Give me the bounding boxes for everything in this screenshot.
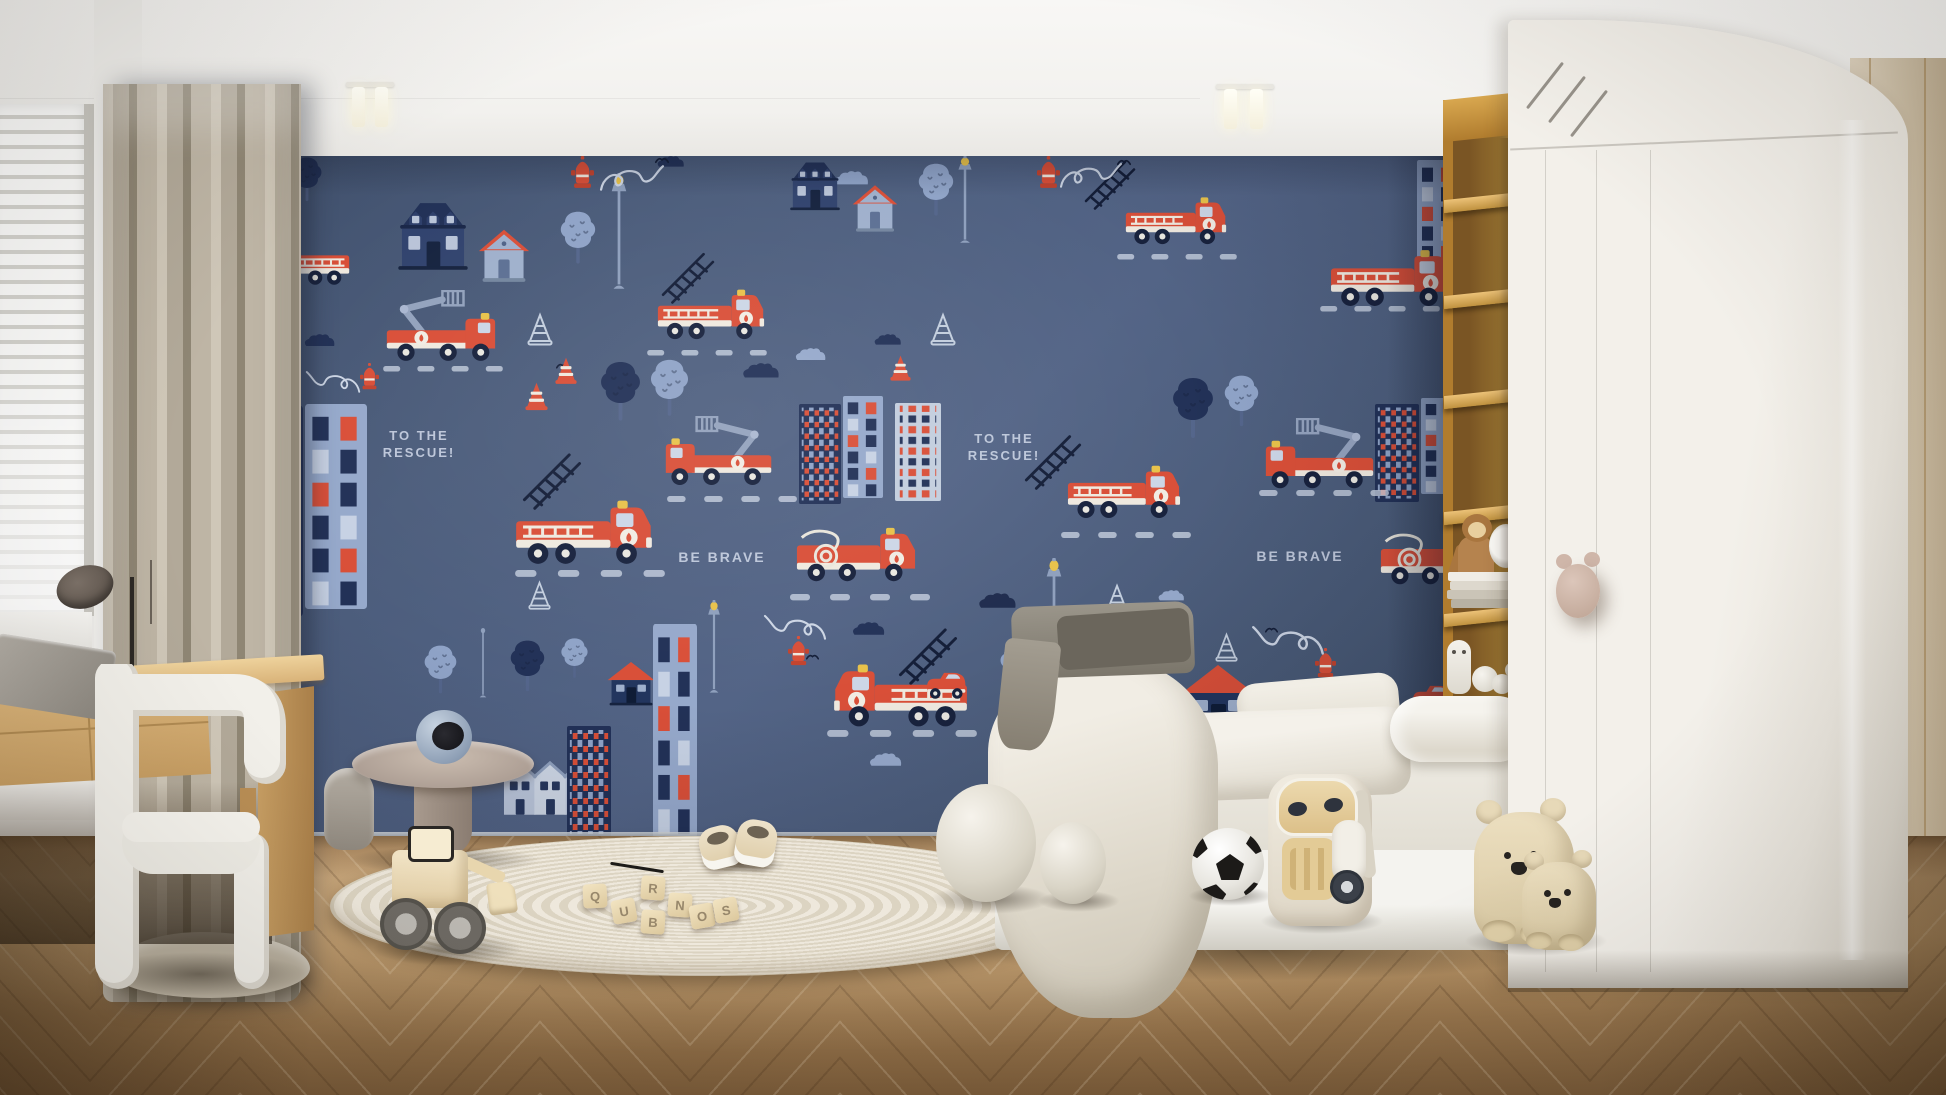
teddy-bear-nose — [1549, 898, 1561, 908]
ceiling-light-tube — [375, 87, 388, 127]
toy-backpack — [1268, 774, 1374, 926]
kids-bedroom-photo: TO THERESCUE!TO THERESCUE!BE BRAVEBE BRA… — [0, 0, 1946, 1095]
teddy-bear-foot — [1482, 920, 1516, 942]
wooden-toy-loader — [374, 822, 520, 964]
toy-letter-block: Q — [582, 883, 607, 908]
loader-scoop — [486, 880, 518, 916]
monkey-plush-face — [1468, 522, 1486, 538]
tubular-chair — [84, 664, 288, 1000]
loader-roll-cage — [408, 826, 454, 862]
teddy-bear-eye — [1544, 890, 1551, 897]
white-ball-large — [936, 784, 1036, 902]
loader-arm — [461, 856, 506, 885]
white-ball-small — [1040, 822, 1106, 904]
teddy-bear-foot — [1558, 934, 1584, 951]
wardrobe-curve-highlight — [1838, 120, 1866, 960]
backpack-wheel — [1330, 870, 1364, 904]
ceiling-light — [1216, 84, 1274, 89]
wardrobe-door-seam — [1650, 150, 1651, 972]
loader-wheel — [380, 898, 432, 950]
blanket-fold — [1056, 607, 1191, 670]
loader-wheel — [434, 902, 486, 954]
teddy-bear-foot — [1526, 932, 1552, 949]
blind-cord — [150, 560, 152, 624]
stool — [324, 768, 374, 850]
backpack-grille-panel — [1282, 838, 1336, 900]
ceiling-light-tube — [1250, 89, 1263, 129]
ceiling-light-tube — [1224, 89, 1237, 129]
wardrobe-handle — [1556, 564, 1600, 618]
owl-figurine — [1447, 640, 1471, 694]
toy-letter-block: O — [688, 902, 716, 930]
toy-letter-block: S — [712, 896, 740, 924]
toy-letter-block: R — [640, 875, 666, 901]
teddy-bear-eye — [1564, 889, 1571, 896]
window-frame — [84, 104, 94, 616]
toy-letter-block: U — [610, 897, 638, 925]
wardrobe-bottom-shadow — [1508, 950, 1908, 992]
teddy-bear-eye — [1504, 852, 1511, 859]
ceiling-light-tube — [352, 87, 365, 127]
toy-letter-block: B — [640, 909, 666, 935]
wardrobe-handle-ear — [1584, 552, 1600, 567]
soccer-ball — [1192, 828, 1264, 900]
